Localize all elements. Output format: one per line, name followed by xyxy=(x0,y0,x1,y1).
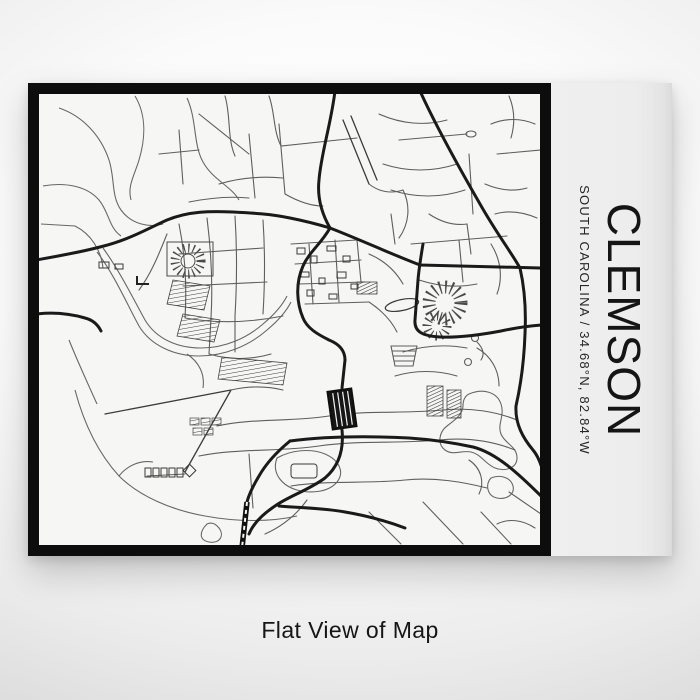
map-frame xyxy=(28,83,551,556)
poster-title: CLEMSON xyxy=(601,185,647,455)
poster-subtitle: SOUTH CAROLINA / 34.68°N, 82.84°W xyxy=(577,185,592,455)
poster-title-block: CLEMSON SOUTH CAROLINA / 34.68°N, 82.84°… xyxy=(577,185,647,455)
sunburst-paths xyxy=(427,287,461,336)
street-map xyxy=(39,94,540,545)
product-photo: CLEMSON SOUTH CAROLINA / 34.68°N, 82.84°… xyxy=(0,0,700,700)
memorial-stadium xyxy=(327,389,356,430)
major-roads xyxy=(39,94,540,545)
poster-margin-panel: CLEMSON SOUTH CAROLINA / 34.68°N, 82.84°… xyxy=(551,83,672,556)
amphitheater xyxy=(167,242,213,276)
map-poster: CLEMSON SOUTH CAROLINA / 34.68°N, 82.84°… xyxy=(28,83,672,556)
caption-text: Flat View of Map xyxy=(0,617,700,644)
